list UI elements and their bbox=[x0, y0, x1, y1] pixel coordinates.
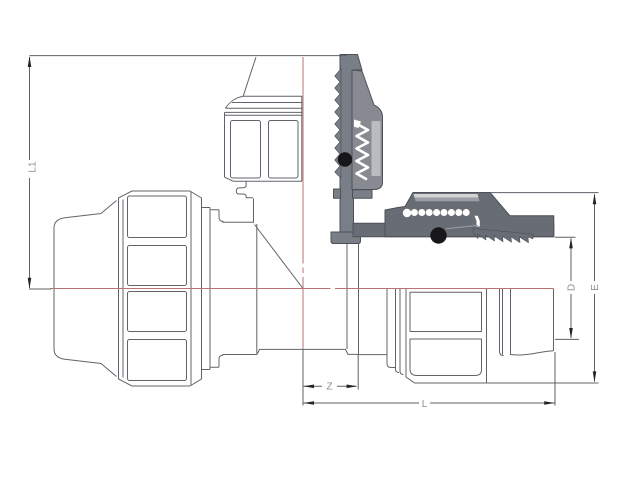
svg-text:L1: L1 bbox=[28, 161, 39, 173]
svg-text:L: L bbox=[422, 399, 428, 410]
svg-text:D: D bbox=[567, 284, 578, 291]
svg-text:Z: Z bbox=[326, 382, 332, 393]
svg-text:E: E bbox=[590, 284, 601, 291]
